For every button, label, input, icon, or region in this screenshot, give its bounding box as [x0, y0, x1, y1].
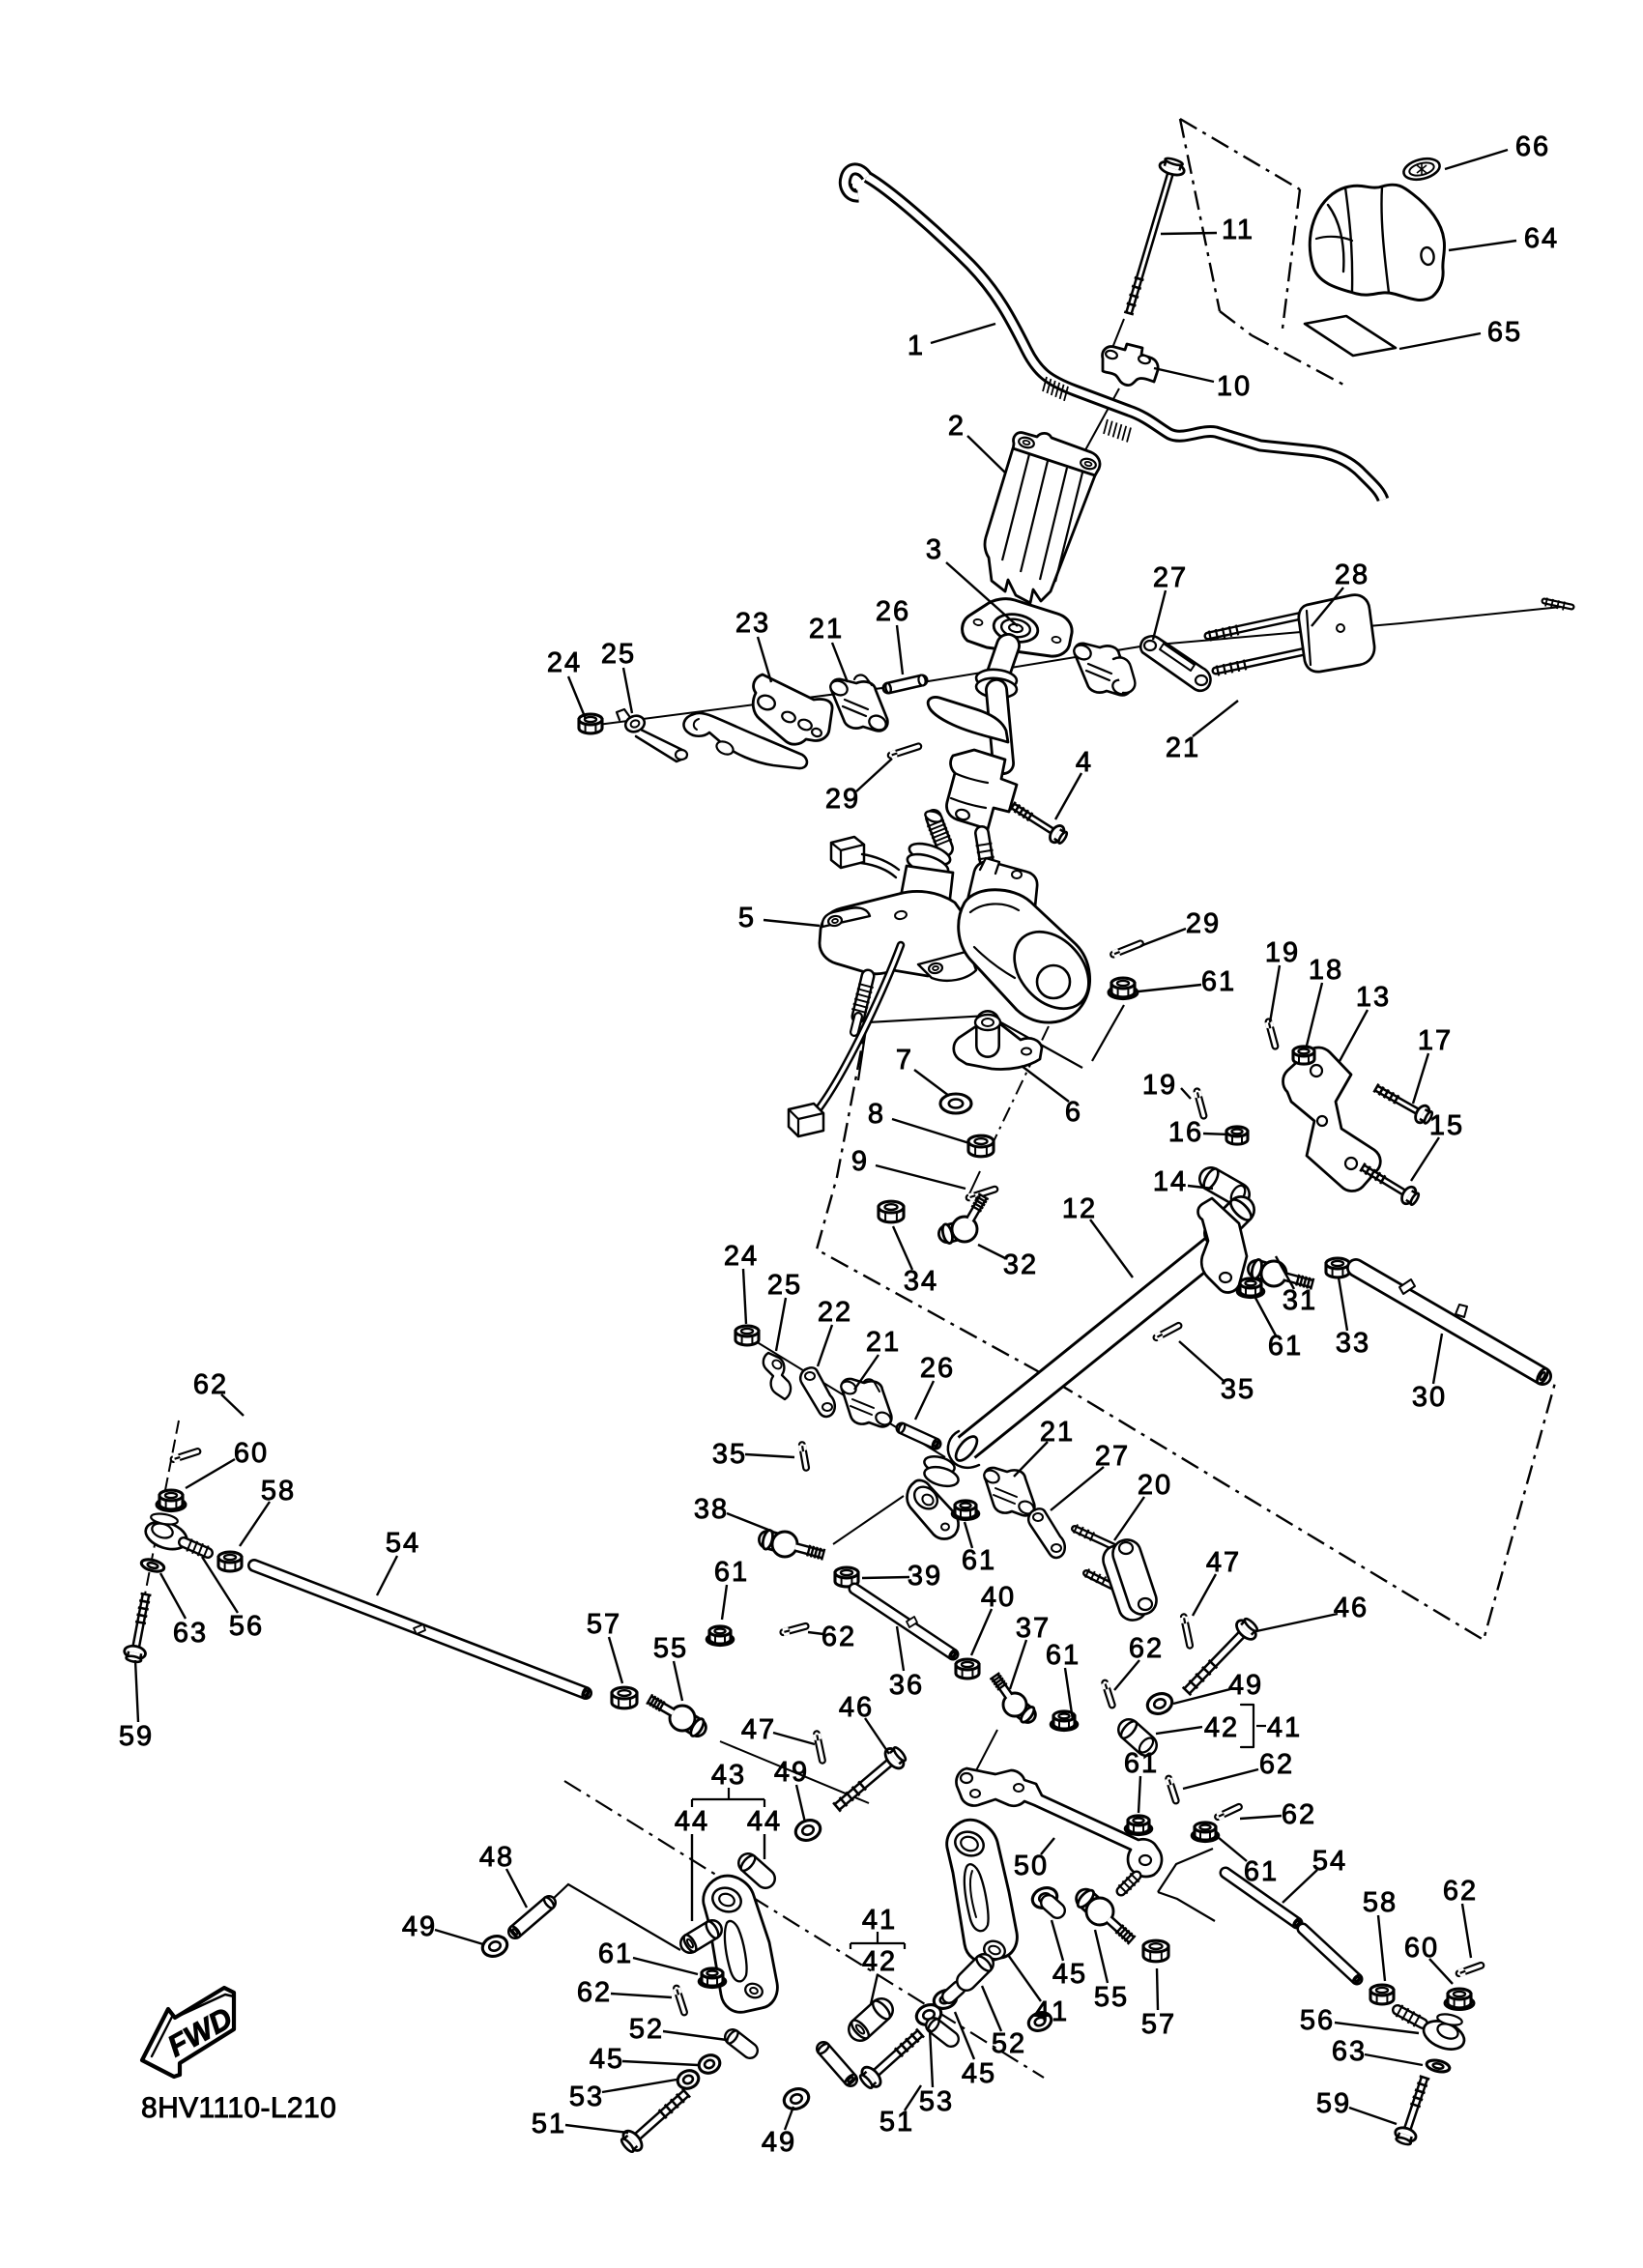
svg-text:45: 45 — [590, 2044, 624, 2075]
svg-text:44: 44 — [675, 1806, 709, 1837]
svg-text:50: 50 — [1014, 1851, 1049, 1881]
svg-text:60: 60 — [234, 1438, 269, 1469]
svg-text:45: 45 — [1052, 1959, 1087, 1990]
svg-text:8: 8 — [868, 1099, 885, 1130]
svg-text:62: 62 — [821, 1622, 856, 1652]
svg-text:36: 36 — [889, 1670, 924, 1701]
svg-text:61: 61 — [1124, 1748, 1159, 1779]
svg-text:41: 41 — [1034, 1996, 1069, 2027]
svg-text:62: 62 — [1282, 1799, 1316, 1830]
svg-text:2: 2 — [948, 411, 966, 442]
svg-text:4: 4 — [1076, 747, 1093, 778]
svg-text:61: 61 — [1268, 1331, 1303, 1362]
svg-text:9: 9 — [851, 1146, 869, 1177]
svg-text:42: 42 — [862, 1946, 897, 1977]
svg-text:47: 47 — [1206, 1547, 1241, 1578]
svg-text:21: 21 — [866, 1327, 901, 1358]
svg-text:55: 55 — [653, 1633, 688, 1664]
svg-text:49: 49 — [774, 1757, 809, 1788]
svg-text:48: 48 — [479, 1842, 514, 1873]
svg-text:56: 56 — [1300, 2005, 1335, 2036]
svg-text:8HV1110-L210: 8HV1110-L210 — [141, 2092, 336, 2124]
svg-text:58: 58 — [261, 1476, 296, 1507]
svg-text:51: 51 — [532, 2109, 566, 2139]
svg-text:25: 25 — [601, 639, 636, 670]
svg-text:15: 15 — [1429, 1110, 1464, 1141]
svg-text:52: 52 — [629, 2014, 664, 2045]
svg-text:1: 1 — [908, 330, 925, 361]
svg-text:18: 18 — [1309, 955, 1343, 986]
svg-text:21: 21 — [809, 614, 844, 645]
svg-text:10: 10 — [1217, 371, 1252, 402]
svg-text:19: 19 — [1142, 1070, 1177, 1101]
svg-text:61: 61 — [1201, 966, 1236, 997]
svg-text:43: 43 — [711, 1760, 746, 1791]
svg-text:53: 53 — [569, 2081, 604, 2112]
svg-text:41: 41 — [1267, 1712, 1302, 1743]
svg-text:62: 62 — [577, 1977, 612, 2008]
svg-text:5: 5 — [738, 903, 756, 933]
svg-text:30: 30 — [1412, 1382, 1447, 1413]
svg-text:45: 45 — [962, 2058, 996, 2089]
svg-text:60: 60 — [1404, 1933, 1439, 1964]
svg-text:51: 51 — [879, 2107, 914, 2138]
svg-text:39: 39 — [908, 1561, 942, 1592]
svg-text:40: 40 — [981, 1582, 1016, 1613]
svg-text:17: 17 — [1418, 1025, 1453, 1056]
svg-text:61: 61 — [714, 1557, 749, 1588]
svg-text:29: 29 — [1186, 908, 1221, 939]
svg-text:14: 14 — [1153, 1166, 1188, 1197]
svg-text:58: 58 — [1363, 1887, 1398, 1918]
svg-text:53: 53 — [919, 2086, 954, 2117]
svg-text:59: 59 — [119, 1721, 154, 1752]
svg-text:26: 26 — [920, 1353, 955, 1384]
svg-text:49: 49 — [1228, 1670, 1263, 1701]
svg-text:57: 57 — [1141, 2009, 1176, 2040]
svg-text:54: 54 — [386, 1528, 420, 1559]
svg-text:46: 46 — [839, 1692, 874, 1723]
svg-text:49: 49 — [402, 1911, 437, 1942]
svg-text:27: 27 — [1153, 562, 1188, 593]
svg-text:35: 35 — [712, 1439, 747, 1470]
svg-text:29: 29 — [825, 784, 860, 815]
svg-text:61: 61 — [1046, 1640, 1081, 1671]
svg-text:25: 25 — [767, 1270, 802, 1301]
svg-text:24: 24 — [724, 1241, 759, 1272]
svg-text:32: 32 — [1003, 1249, 1038, 1280]
svg-text:46: 46 — [1334, 1593, 1369, 1623]
svg-text:61: 61 — [962, 1545, 996, 1576]
svg-text:63: 63 — [173, 1618, 208, 1649]
svg-text:28: 28 — [1335, 560, 1369, 590]
svg-text:65: 65 — [1487, 317, 1522, 348]
svg-text:62: 62 — [1443, 1876, 1478, 1907]
svg-text:35: 35 — [1221, 1374, 1255, 1405]
svg-text:61: 61 — [1244, 1856, 1279, 1887]
svg-text:56: 56 — [229, 1611, 264, 1642]
svg-text:57: 57 — [587, 1609, 621, 1640]
svg-text:11: 11 — [1222, 215, 1254, 245]
svg-text:41: 41 — [862, 1905, 897, 1936]
svg-text:61: 61 — [598, 1938, 633, 1969]
svg-text:49: 49 — [762, 2127, 796, 2158]
svg-text:47: 47 — [741, 1714, 776, 1745]
svg-text:13: 13 — [1356, 982, 1391, 1013]
svg-text:62: 62 — [1259, 1749, 1294, 1780]
svg-text:55: 55 — [1094, 1982, 1129, 2013]
svg-text:24: 24 — [547, 647, 582, 678]
svg-text:31: 31 — [1283, 1285, 1317, 1316]
svg-text:21: 21 — [1166, 732, 1200, 763]
svg-text:3: 3 — [926, 534, 943, 565]
svg-text:23: 23 — [735, 608, 770, 639]
svg-text:44: 44 — [747, 1806, 782, 1837]
svg-text:62: 62 — [1129, 1633, 1164, 1664]
svg-text:38: 38 — [694, 1494, 729, 1525]
svg-text:20: 20 — [1138, 1470, 1172, 1501]
svg-text:16: 16 — [1168, 1117, 1203, 1148]
svg-text:27: 27 — [1095, 1441, 1130, 1472]
svg-text:33: 33 — [1336, 1328, 1370, 1359]
svg-text:19: 19 — [1265, 937, 1300, 968]
svg-text:7: 7 — [896, 1045, 913, 1076]
svg-text:66: 66 — [1515, 131, 1550, 162]
svg-text:34: 34 — [904, 1266, 938, 1297]
svg-text:59: 59 — [1316, 2088, 1351, 2119]
svg-text:26: 26 — [876, 596, 910, 627]
svg-text:52: 52 — [992, 2028, 1026, 2059]
svg-text:63: 63 — [1332, 2036, 1367, 2067]
svg-text:64: 64 — [1524, 223, 1559, 254]
svg-text:42: 42 — [1204, 1712, 1239, 1743]
svg-text:22: 22 — [818, 1297, 852, 1328]
svg-text:54: 54 — [1312, 1846, 1347, 1877]
